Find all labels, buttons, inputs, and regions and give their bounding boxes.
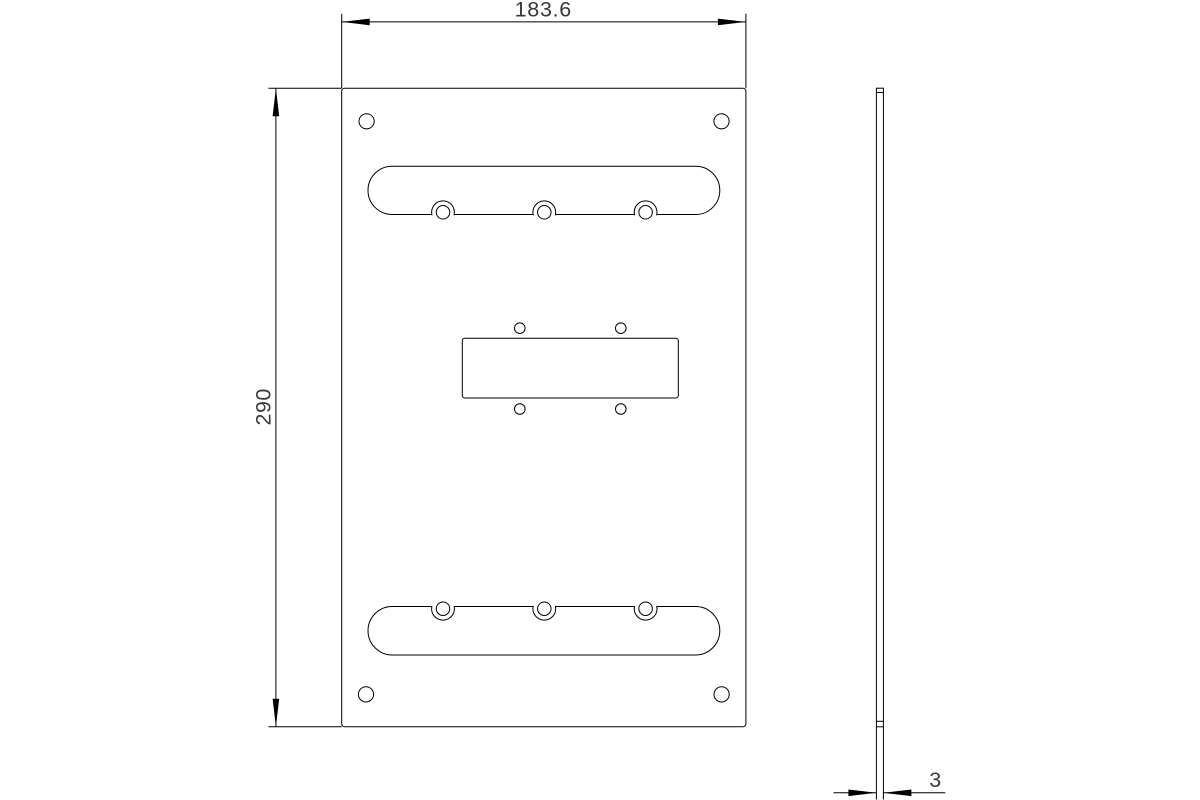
svg-text:3: 3	[929, 768, 941, 792]
svg-text:290: 290	[251, 388, 275, 425]
svg-text:183.6: 183.6	[515, 0, 572, 21]
